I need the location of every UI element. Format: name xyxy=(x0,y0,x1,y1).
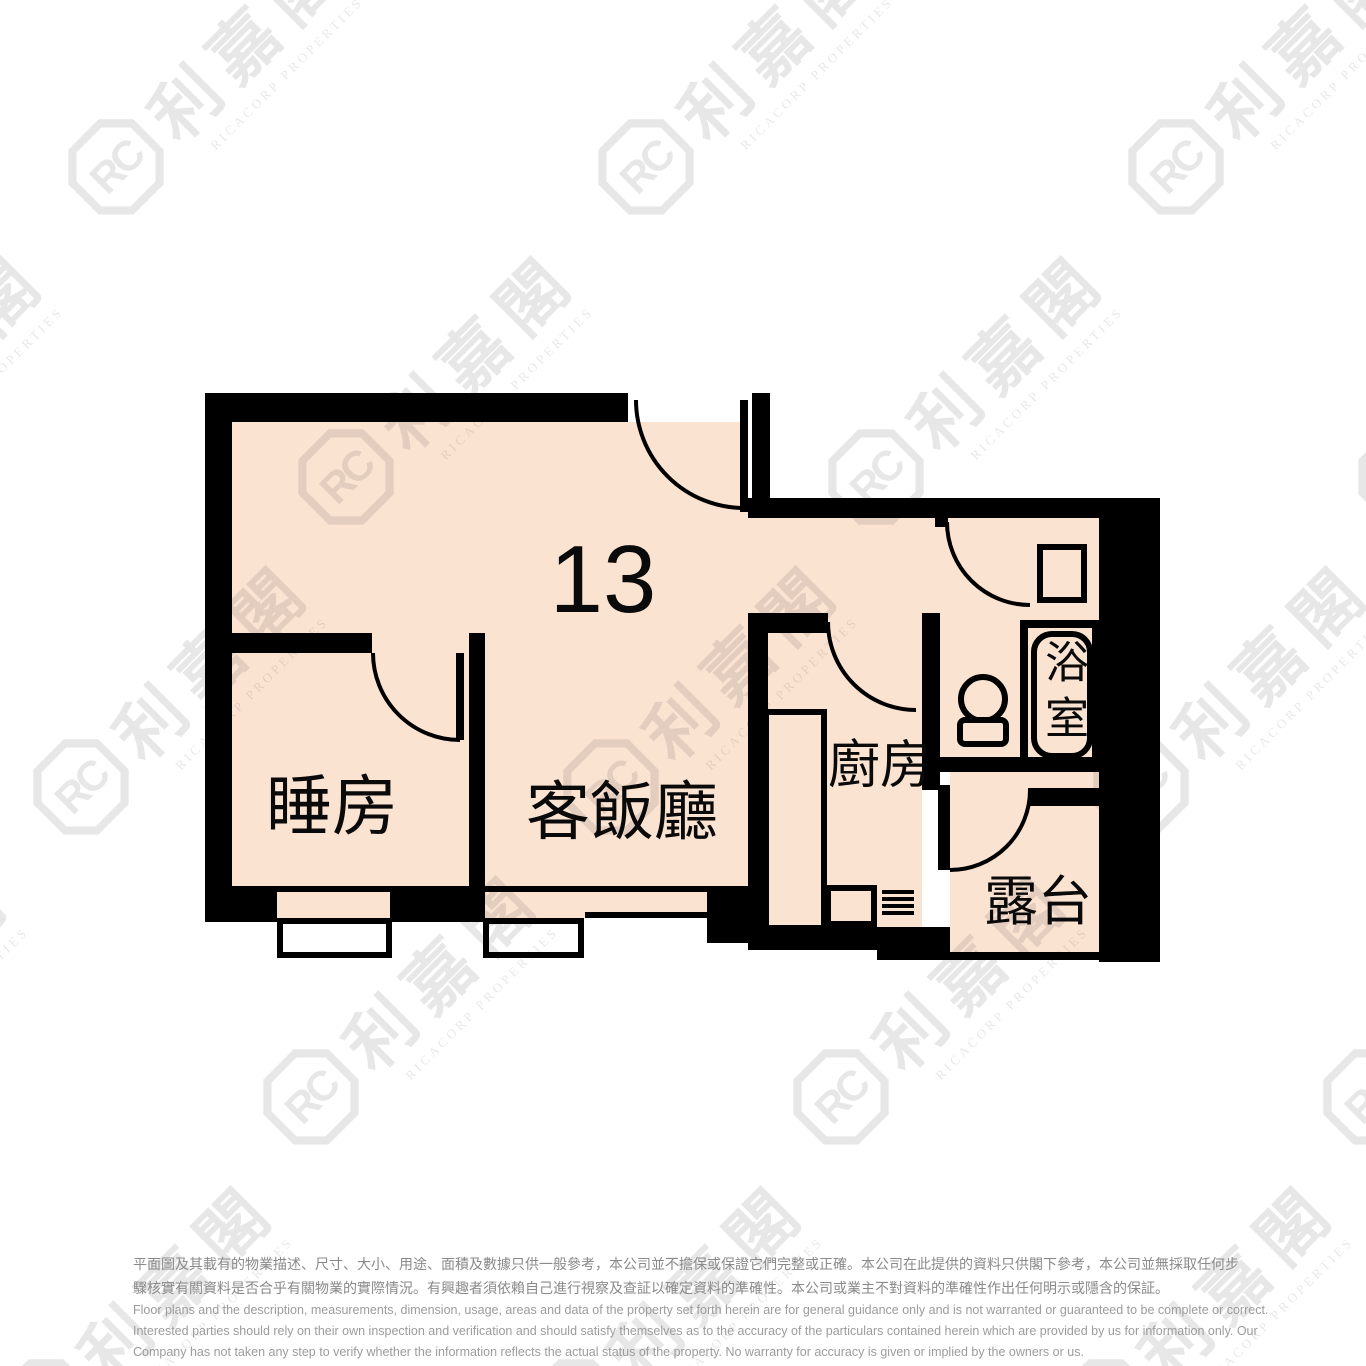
washbasin xyxy=(961,677,1005,721)
bay-windows xyxy=(280,921,581,955)
page-background: 13 睡房 客飯廳 廚房 露台 浴室 RC 利嘉閣 RICACORP PROPE… xyxy=(0,0,1366,1366)
living-bay-window xyxy=(486,921,581,955)
window-square xyxy=(1040,547,1084,600)
disclaimer-zh-line-1: 平面圖及其載有的物業描述、尺寸、大小、用途、面積及數據只供一般參考，本公司並不擔… xyxy=(133,1252,1253,1276)
disclaimer-chinese: 平面圖及其載有的物業描述、尺寸、大小、用途、面積及數據只供一般參考，本公司並不擔… xyxy=(133,1252,1253,1300)
disclaimer-zh-line-2: 驟核實有關資料是否合乎有關物業的實際情況。有興趣者須依賴自己進行視察及查証以確定… xyxy=(133,1276,1253,1300)
kitchen-counter xyxy=(766,712,824,928)
disclaimer-en-line-1: Floor plans and the description, measure… xyxy=(133,1300,1253,1321)
disclaimer-english: Floor plans and the description, measure… xyxy=(133,1300,1253,1363)
floor-plan xyxy=(0,0,1366,1366)
bathtub xyxy=(1034,634,1090,756)
disclaimer-en-line-3: Company has not taken any step to verify… xyxy=(133,1342,1253,1363)
bedroom-bay-window xyxy=(280,921,389,955)
washbasin-base xyxy=(960,720,1006,744)
disclaimer-en-line-2: Interested parties should rely on their … xyxy=(133,1321,1253,1342)
stove xyxy=(828,888,874,924)
